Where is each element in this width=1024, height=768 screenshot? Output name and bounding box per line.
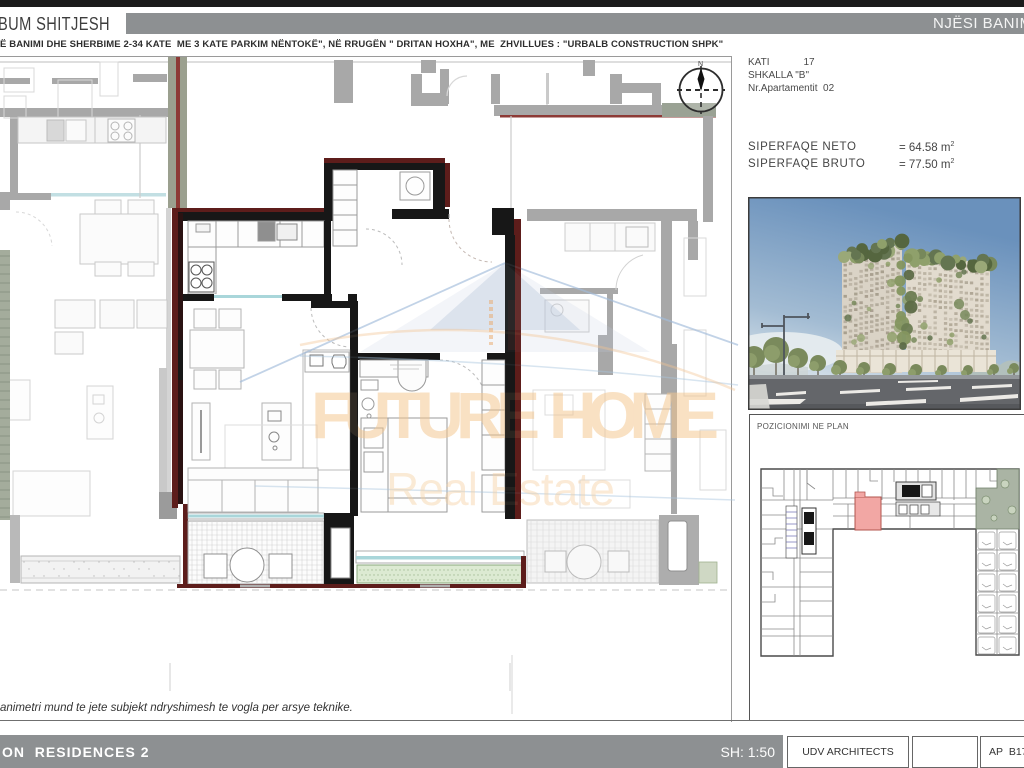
svg-text:HOME: HOME (549, 378, 719, 452)
svg-text:N: N (698, 61, 703, 68)
svg-text:Real Estate: Real Estate (386, 463, 615, 515)
